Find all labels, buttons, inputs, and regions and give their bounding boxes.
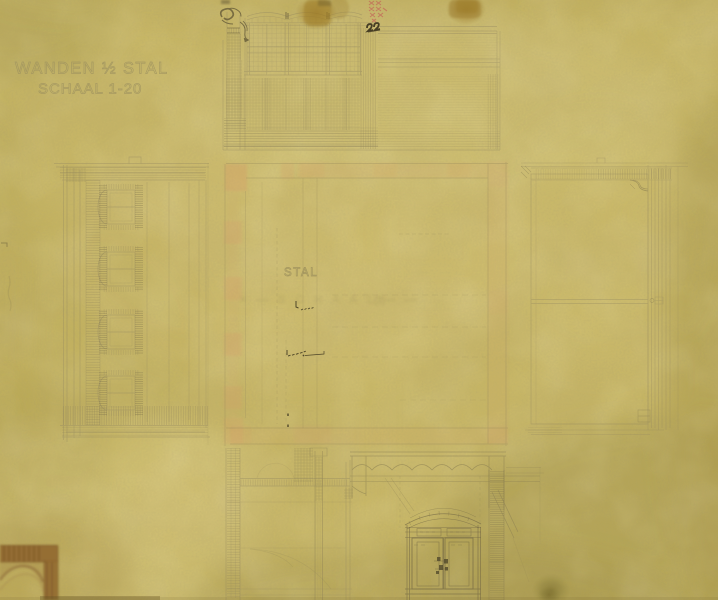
svg-text:(3): (3) bbox=[374, 295, 385, 305]
svg-text:STAL: STAL bbox=[284, 267, 318, 279]
svg-text:WANDEN ½ STAL: WANDEN ½ STAL bbox=[15, 60, 170, 78]
svg-text:SCHAAL 1-20: SCHAAL 1-20 bbox=[38, 81, 144, 98]
